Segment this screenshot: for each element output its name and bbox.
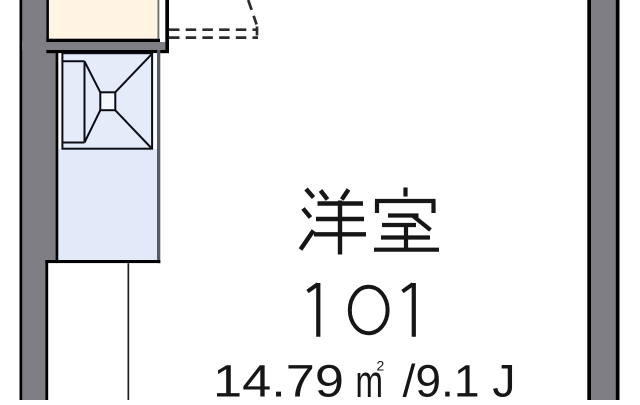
svg-text:2: 2: [377, 358, 385, 374]
svg-text:/9.1 J: /9.1 J: [403, 356, 516, 401]
svg-text:14.79: 14.79: [213, 356, 344, 401]
